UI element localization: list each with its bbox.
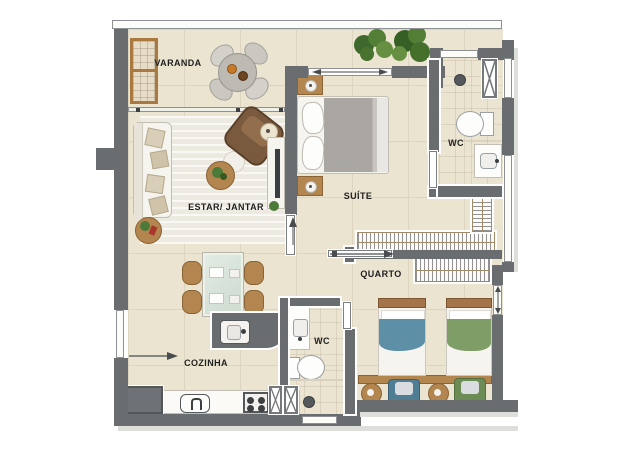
single-bed-green — [446, 298, 492, 376]
lamp-center — [266, 129, 270, 133]
suite-door-arrow — [289, 217, 297, 247]
wall-wc2-top — [280, 298, 340, 306]
duct — [482, 59, 497, 98]
bowl — [238, 71, 248, 81]
wall-right-bedroom-lower — [492, 315, 503, 412]
door-track-stop — [279, 108, 283, 112]
balcony-table — [218, 53, 257, 92]
wall-living-suite — [285, 66, 297, 215]
window-arrow-vertical — [495, 286, 501, 314]
dining-chair — [182, 261, 202, 285]
suite-double-bed — [297, 96, 389, 174]
dining-chair — [182, 290, 202, 314]
wall-shadow — [514, 48, 518, 272]
wall-suite-top-left — [296, 66, 308, 78]
suite-wardrobe — [357, 232, 495, 252]
shower-head — [454, 74, 466, 86]
lamp-center — [309, 84, 312, 87]
wc2-door — [343, 302, 351, 329]
single-bed-blue — [378, 298, 426, 376]
room-label-estar-jantar: ESTAR/ JANTAR — [188, 202, 264, 212]
wall-wc-suite-bottom — [438, 186, 502, 197]
plant — [220, 173, 227, 180]
toilet — [297, 355, 325, 380]
bedroom-door-arrow — [330, 250, 396, 258]
tv — [275, 149, 280, 198]
bowl — [227, 64, 237, 74]
plant — [140, 221, 150, 231]
stove — [243, 392, 269, 413]
wall-right-lower — [502, 262, 514, 272]
lamp-center — [309, 185, 312, 188]
stool-center — [367, 389, 374, 396]
plant — [269, 201, 279, 211]
floor-plan: VARANDA ESTAR/ JANTAR SUÍTE WC QUARTO CO… — [0, 0, 639, 452]
bathroom-sink-counter — [474, 144, 502, 178]
wc-sink-counter — [288, 306, 310, 350]
door-track-stop — [236, 108, 240, 112]
plant — [390, 24, 434, 68]
toilet — [456, 111, 484, 137]
room-label-wc-social: WC — [314, 336, 330, 346]
window-wc2 — [302, 416, 337, 424]
wall-shadow — [118, 426, 518, 431]
window-arrows — [310, 69, 390, 75]
bedroom-wardrobe — [415, 258, 490, 282]
suite-closet — [472, 197, 492, 232]
dining-chair — [244, 290, 264, 314]
duct — [269, 386, 282, 414]
wc-suite-door — [429, 151, 437, 188]
room-label-cozinha: COZINHA — [184, 358, 228, 368]
door-track-stop — [136, 108, 140, 112]
room-label-wc-suite: WC — [448, 138, 464, 148]
service-sink — [180, 394, 210, 413]
window-right-upper — [504, 58, 512, 98]
dining-table — [203, 253, 243, 316]
wall-wc2-right — [345, 329, 355, 414]
wall-left-pier — [96, 148, 128, 170]
wall-left-upper — [114, 29, 128, 148]
window-right-long — [504, 155, 512, 262]
wall-left-lower — [114, 358, 128, 416]
kitchen-sink — [220, 320, 250, 344]
window-service — [116, 310, 124, 358]
wall-shadow — [360, 412, 518, 417]
service-arrow — [127, 349, 179, 363]
balcony-railing — [112, 20, 502, 29]
shower-divider — [288, 379, 343, 381]
wall-wc2-left — [280, 298, 288, 388]
room-label-quarto: QUARTO — [360, 269, 401, 279]
shower-head — [303, 396, 315, 408]
louver-cabinet-divider — [130, 69, 158, 72]
wall-right-mid — [502, 98, 514, 155]
room-label-suite: SUÍTE — [344, 191, 373, 201]
wall-wc-suite — [429, 60, 439, 152]
room-label-varanda: VARANDA — [154, 58, 201, 68]
window-wc-suite — [440, 50, 478, 58]
sofa — [133, 122, 172, 218]
duct — [284, 386, 298, 414]
stool-center — [434, 389, 441, 396]
dining-chair — [244, 261, 264, 285]
wall-left-mid — [114, 170, 128, 310]
